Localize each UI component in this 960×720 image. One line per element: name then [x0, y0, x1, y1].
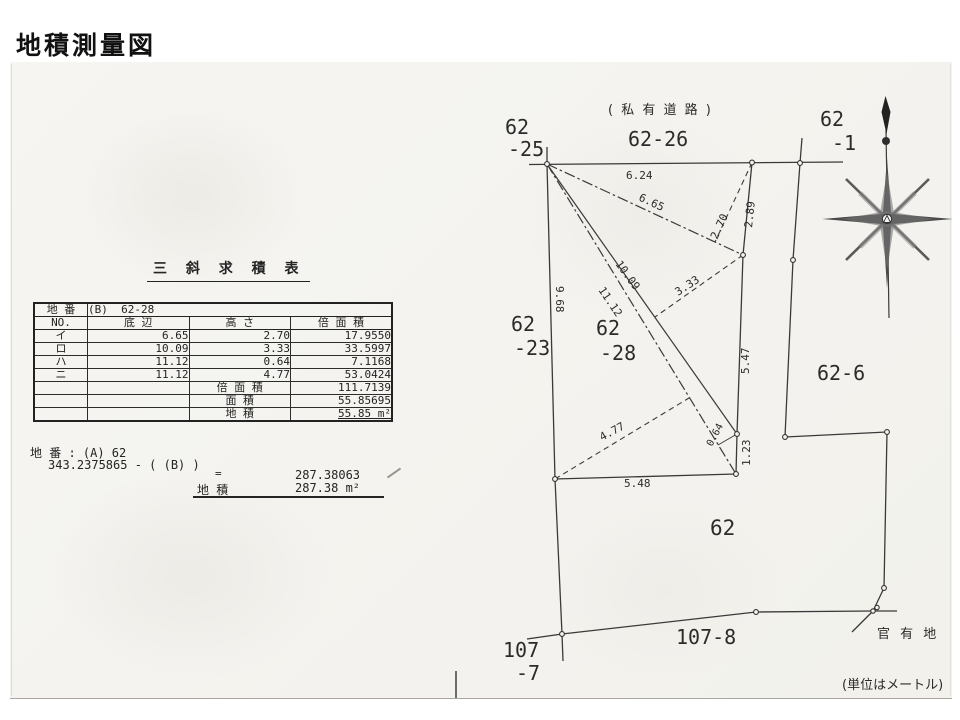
- measurement-east-edge: 5.47: [739, 348, 752, 375]
- measurement-diagonal-1: 10.09: [613, 258, 643, 292]
- parcel-label-107-8: 107-8: [676, 625, 736, 649]
- parcel-label-107-7: 107: [503, 638, 539, 662]
- units-note: (単位はメートル): [842, 677, 943, 693]
- parcel-label-62-28: 62: [596, 316, 620, 340]
- government-land-label: 官 有 地: [877, 626, 939, 642]
- parcel-label-62-1: -1: [832, 131, 856, 155]
- gov-land-leader-line: [852, 611, 873, 632]
- survey-document-page: 地積測量図 三 斜 求 積 表 地 番 (B) 62-28 NO. 底 辺 高 …: [0, 0, 960, 720]
- parcel-label-62-1: 62: [820, 107, 844, 131]
- parcel-label-62-6: 62-6: [817, 361, 865, 385]
- measurement-tri-ni-height: 4.77: [597, 420, 627, 444]
- survey-map-drawing: 62 -25 62-26 62 -1 62 -23 62 -28 62-6 62…: [0, 0, 960, 720]
- parcel-label-62: 62: [710, 516, 735, 540]
- west-boundary-9-68: [547, 164, 555, 479]
- map-annotations: ( 私 有 道 路 ) 官 有 地 (単位はメートル): [608, 102, 943, 693]
- parcel-label-62-23: -23: [514, 336, 550, 360]
- height-3-33-dashed: [655, 255, 743, 317]
- measurement-west-edge: 9.68: [553, 286, 566, 313]
- measurement-diagonal-2: 11.12: [596, 284, 625, 319]
- measurement-ne-edge: 2.89: [742, 201, 758, 229]
- measurement-se-edge: 1.23: [740, 440, 753, 467]
- parcel-label-62-26: 62-26: [628, 127, 688, 151]
- parcel-label-62-28: -28: [600, 341, 636, 365]
- parcel-label-62-25: -25: [508, 137, 544, 161]
- east-parcel-west-line: [785, 138, 802, 437]
- north-road-boundary: [529, 162, 843, 165]
- measurement-south-edge: 5.48: [624, 477, 651, 490]
- measurement-tri-ha-height: 0.64: [705, 422, 726, 448]
- height-4-77-dashed: [555, 398, 689, 479]
- east-edge-1-23: [736, 434, 737, 474]
- parcel-label-62-25: 62: [505, 115, 529, 139]
- measurement-tri-i-base: 6.65: [637, 191, 667, 214]
- parcel-label-107-7: -7: [516, 661, 540, 685]
- private-road-label: ( 私 有 道 路 ): [608, 102, 713, 118]
- parcel-label-62-23: 62: [511, 312, 535, 336]
- measurement-tri-i-height: 2.70: [708, 212, 731, 242]
- chain-line-11-12: [547, 164, 736, 474]
- parcel-labels: 62 -25 62-26 62 -1 62 -23 62 -28 62-6 62…: [503, 107, 865, 685]
- north-arrow-icon: [882, 96, 891, 134]
- east-edge-5-47: [737, 255, 743, 434]
- measurement-top-edge: 6.24: [626, 169, 653, 182]
